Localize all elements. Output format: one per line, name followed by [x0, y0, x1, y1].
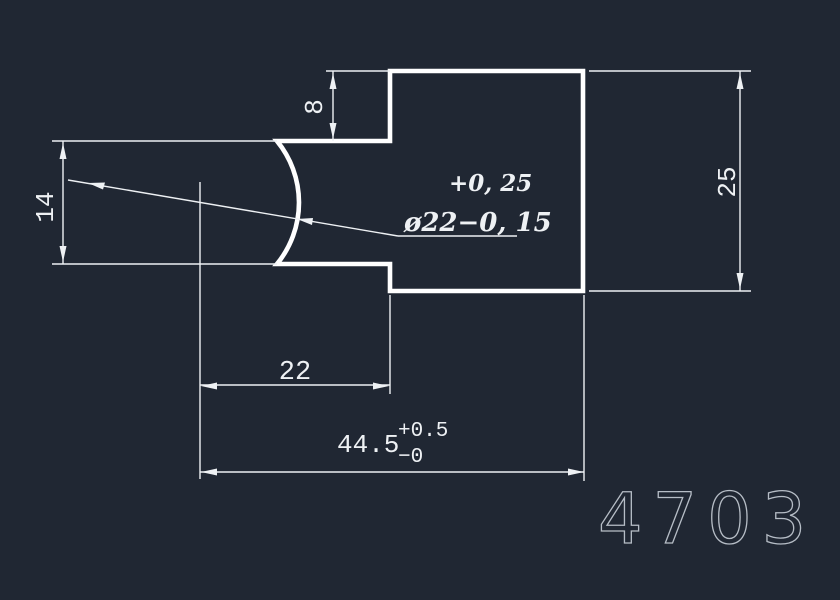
dim-label-8: 8 — [300, 99, 330, 115]
dim-label-overall: 44.5 — [337, 430, 399, 460]
dim-label-overall-upper-tol: +0.5 — [398, 420, 448, 443]
dim-label-sphere-upper-tol: +0, 25 — [449, 170, 532, 197]
part-number: 4703 — [598, 478, 816, 560]
dim-label-22: 22 — [279, 358, 311, 388]
cad-viewport: 14 8 25 22 44.5 +0.5 −0 +0, 25 ø22−0, 15… — [0, 0, 840, 600]
dim-label-overall-lower-tol: −0 — [398, 446, 423, 469]
dim-label-25: 25 — [713, 166, 743, 197]
cad-drawing: 14 8 25 22 44.5 +0.5 −0 +0, 25 ø22−0, 15… — [0, 0, 840, 600]
dim-label-14: 14 — [31, 191, 61, 222]
dim-label-sphere-diameter: ø22−0, 15 — [403, 208, 552, 238]
